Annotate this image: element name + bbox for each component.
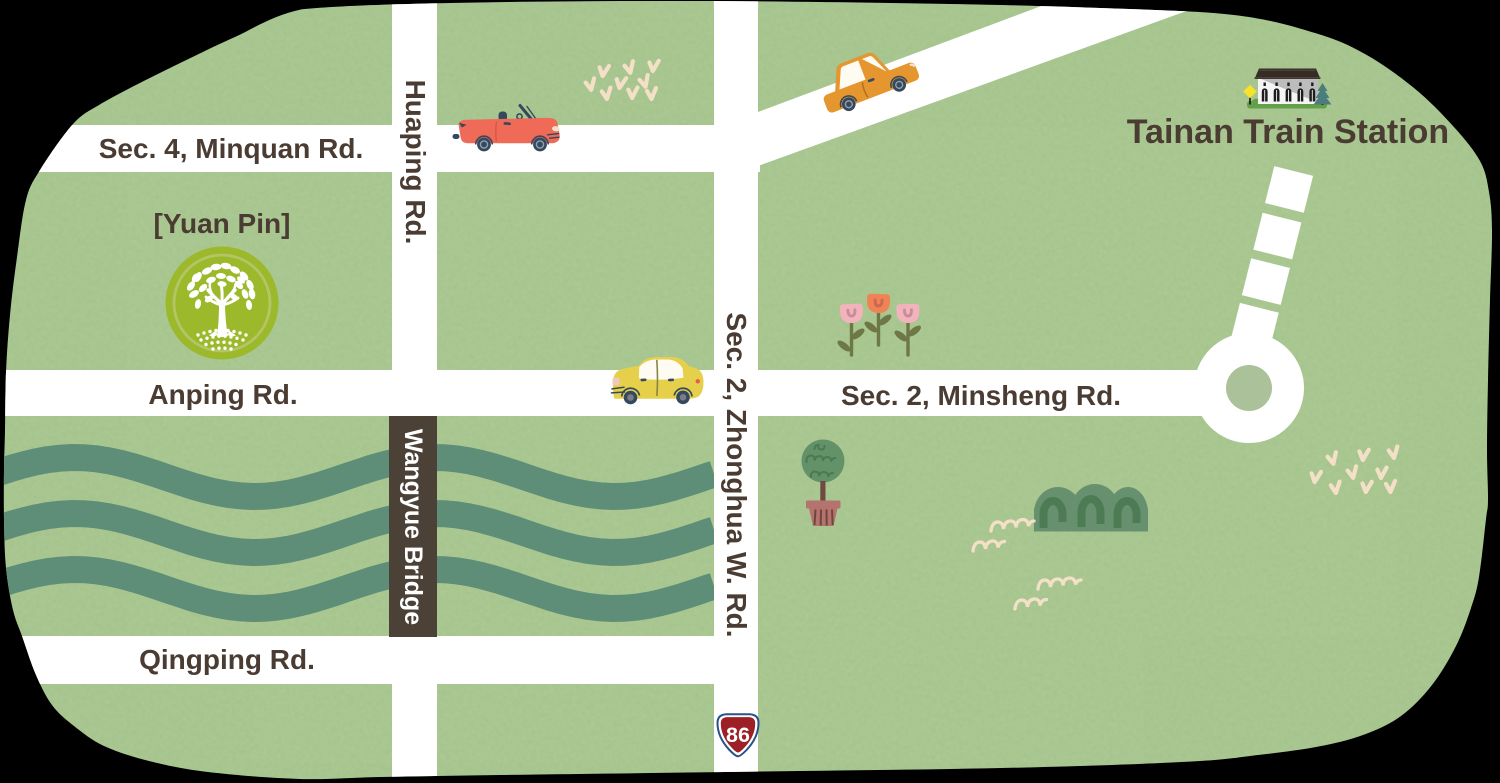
svg-text:Huaping Rd.: Huaping Rd. [400, 80, 431, 245]
svg-text:86: 86 [726, 723, 750, 747]
svg-text:Sec. 4, Minquan Rd.: Sec. 4, Minquan Rd. [99, 133, 363, 164]
svg-text:[Yuan Pin]: [Yuan Pin] [154, 208, 291, 239]
svg-text:Wangyue Bridge: Wangyue Bridge [399, 429, 427, 625]
svg-text:Qingping Rd.: Qingping Rd. [139, 644, 315, 675]
svg-text:Sec. 2, Minsheng Rd.: Sec. 2, Minsheng Rd. [841, 380, 1121, 411]
svg-text:Sec. 2, Zhonghua W. Rd.: Sec. 2, Zhonghua W. Rd. [721, 312, 752, 637]
svg-text:Anping Rd.: Anping Rd. [148, 379, 297, 410]
svg-text:Tainan Train Station: Tainan Train Station [1127, 113, 1449, 151]
